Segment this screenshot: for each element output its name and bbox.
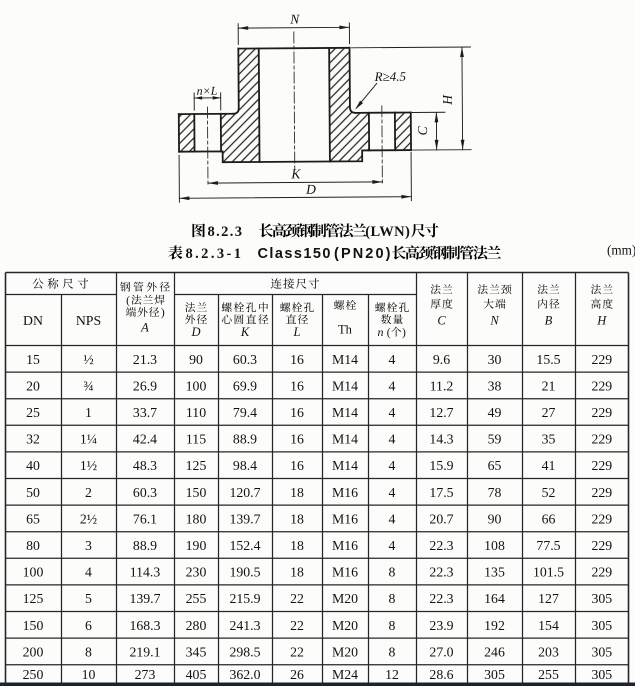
svg-text:½: ½	[83, 352, 93, 367]
svg-text:90: 90	[189, 352, 203, 367]
svg-text:154: 154	[538, 618, 559, 633]
svg-text:139.7: 139.7	[129, 591, 160, 606]
svg-text:88.9: 88.9	[133, 538, 157, 553]
svg-text:108: 108	[484, 538, 505, 553]
svg-text:78: 78	[488, 485, 502, 500]
svg-text:405: 405	[186, 667, 207, 682]
svg-text:NPS: NPS	[76, 313, 101, 328]
svg-text:4: 4	[389, 432, 396, 447]
svg-text:152.4: 152.4	[229, 538, 260, 553]
svg-text:305: 305	[591, 618, 612, 633]
svg-text:298.5: 298.5	[229, 644, 260, 659]
svg-text:4: 4	[389, 458, 396, 473]
svg-text:69.9: 69.9	[233, 378, 257, 393]
svg-text:4: 4	[389, 511, 396, 526]
svg-text:66: 66	[542, 511, 556, 526]
svg-text:¾: ¾	[83, 378, 93, 393]
svg-text:229: 229	[591, 565, 612, 580]
svg-text:38: 38	[488, 378, 502, 393]
svg-text:168.3: 168.3	[129, 618, 160, 633]
svg-text:(: (	[387, 327, 391, 339]
svg-text:33.7: 33.7	[133, 405, 157, 420]
svg-text:164: 164	[484, 591, 505, 606]
svg-text:229: 229	[591, 378, 612, 393]
svg-text:17.5: 17.5	[429, 485, 453, 500]
svg-text:305: 305	[484, 667, 505, 682]
svg-text:21.3: 21.3	[133, 352, 157, 367]
svg-text:8: 8	[389, 618, 396, 633]
svg-text:22.3: 22.3	[429, 591, 453, 606]
svg-text:16: 16	[290, 378, 304, 393]
svg-text:8.2.3: 8.2.3	[208, 224, 243, 240]
svg-text:12.7: 12.7	[429, 405, 453, 420]
svg-text:M16: M16	[332, 538, 358, 553]
svg-text:): )	[161, 307, 165, 319]
svg-text:M14: M14	[332, 458, 358, 473]
svg-text:150: 150	[186, 485, 207, 500]
svg-text:48.3: 48.3	[133, 458, 157, 473]
svg-text:M14: M14	[332, 378, 358, 393]
svg-text:190: 190	[186, 538, 207, 553]
svg-text:D: D	[190, 325, 200, 339]
svg-text:229: 229	[591, 458, 612, 473]
svg-text:28.6: 28.6	[429, 667, 453, 682]
svg-text:5: 5	[85, 591, 92, 606]
svg-text:K: K	[290, 166, 301, 181]
svg-text:16: 16	[290, 352, 304, 367]
svg-text:M14: M14	[332, 405, 358, 420]
svg-text:100: 100	[23, 565, 44, 580]
svg-text:79.4: 79.4	[233, 405, 257, 420]
svg-text:22: 22	[290, 644, 304, 659]
svg-text:345: 345	[186, 644, 207, 659]
svg-text:20: 20	[26, 378, 40, 393]
svg-text:229: 229	[591, 405, 612, 420]
svg-text:22.3: 22.3	[429, 538, 453, 553]
svg-text:139.7: 139.7	[229, 511, 260, 526]
svg-text:4: 4	[389, 405, 396, 420]
svg-text:22.3: 22.3	[429, 565, 453, 580]
svg-text:100: 100	[186, 378, 207, 393]
svg-text:(PN20): (PN20)	[334, 246, 391, 262]
svg-text:49: 49	[488, 405, 502, 420]
svg-text:273: 273	[135, 667, 156, 682]
svg-text:77.5: 77.5	[536, 538, 560, 553]
svg-text:229: 229	[591, 485, 612, 500]
svg-text:203: 203	[538, 644, 559, 659]
svg-text:135: 135	[484, 565, 505, 580]
svg-text:8.2.3-1: 8.2.3-1	[186, 246, 242, 262]
svg-text:(LWN): (LWN)	[365, 224, 410, 240]
svg-text:305: 305	[591, 667, 612, 682]
svg-text:76.1: 76.1	[133, 511, 157, 526]
svg-text:115: 115	[186, 432, 206, 447]
svg-text:9.6: 9.6	[433, 352, 450, 367]
svg-text:114.3: 114.3	[130, 565, 161, 580]
svg-text:2: 2	[85, 485, 92, 500]
svg-text:80: 80	[26, 538, 40, 553]
svg-text:15: 15	[26, 352, 40, 367]
svg-text:22: 22	[290, 591, 304, 606]
svg-text:65: 65	[488, 458, 502, 473]
svg-text:K: K	[240, 325, 250, 339]
svg-text:DN: DN	[23, 313, 43, 328]
svg-text:M14: M14	[332, 432, 358, 447]
svg-text:229: 229	[591, 511, 612, 526]
svg-text:362.0: 362.0	[229, 667, 260, 682]
svg-text:H: H	[440, 94, 455, 106]
svg-text:M24: M24	[332, 667, 358, 682]
svg-text:B: B	[545, 314, 553, 328]
svg-text:250: 250	[23, 667, 44, 682]
svg-text:230: 230	[186, 565, 207, 580]
svg-text:229: 229	[591, 432, 612, 447]
svg-text:26.9: 26.9	[133, 378, 157, 393]
svg-text:n: n	[378, 325, 384, 339]
svg-text:16: 16	[290, 432, 304, 447]
svg-text:23.9: 23.9	[429, 618, 453, 633]
svg-text:101.5: 101.5	[533, 565, 564, 580]
svg-text:M20: M20	[332, 644, 358, 659]
svg-text:98.4: 98.4	[233, 458, 257, 473]
svg-text:H: H	[596, 314, 607, 328]
svg-text:16: 16	[290, 405, 304, 420]
svg-text:6: 6	[85, 618, 92, 633]
svg-text:1¼: 1¼	[80, 432, 97, 447]
svg-text:60.3: 60.3	[133, 485, 157, 500]
svg-text:18: 18	[290, 538, 304, 553]
svg-text:52: 52	[542, 485, 556, 500]
svg-text:255: 255	[186, 591, 207, 606]
svg-text:12: 12	[385, 667, 399, 682]
svg-text:60.3: 60.3	[233, 352, 257, 367]
svg-text:3: 3	[85, 538, 92, 553]
svg-text:22: 22	[290, 618, 304, 633]
svg-text:8: 8	[85, 644, 92, 659]
svg-text:M20: M20	[332, 618, 358, 633]
svg-text:n×L: n×L	[197, 84, 218, 98]
svg-text:10: 10	[82, 667, 96, 682]
svg-text:219.1: 219.1	[129, 644, 160, 659]
svg-text:127: 127	[538, 591, 559, 606]
svg-text:4: 4	[85, 565, 92, 580]
svg-text:27.0: 27.0	[429, 644, 453, 659]
svg-text:229: 229	[591, 538, 612, 553]
svg-text:40: 40	[26, 458, 40, 473]
svg-text:): )	[402, 327, 406, 339]
svg-text:190.5: 190.5	[229, 565, 260, 580]
svg-text:M16: M16	[332, 565, 358, 580]
svg-text:8: 8	[389, 565, 396, 580]
svg-text:255: 255	[538, 667, 559, 682]
svg-text:125: 125	[186, 458, 207, 473]
svg-text:L: L	[293, 325, 301, 339]
svg-text:30: 30	[488, 352, 502, 367]
svg-text:41: 41	[542, 458, 556, 473]
svg-text:M16: M16	[332, 511, 358, 526]
svg-text:65: 65	[26, 511, 40, 526]
svg-text:50: 50	[26, 485, 40, 500]
svg-text:2½: 2½	[80, 511, 97, 526]
svg-text:14.3: 14.3	[429, 432, 453, 447]
svg-text:20.7: 20.7	[429, 511, 453, 526]
svg-text:90: 90	[488, 511, 502, 526]
svg-text:R≥4.5: R≥4.5	[374, 69, 407, 84]
svg-text:32: 32	[26, 432, 40, 447]
svg-text:200: 200	[23, 644, 44, 659]
svg-text:280: 280	[186, 618, 207, 633]
svg-text:180: 180	[186, 511, 207, 526]
svg-text:C: C	[415, 125, 430, 135]
svg-text:M20: M20	[332, 591, 358, 606]
svg-text:192: 192	[484, 618, 505, 633]
svg-text:125: 125	[23, 591, 44, 606]
svg-text:305: 305	[591, 591, 612, 606]
svg-text:4: 4	[389, 378, 396, 393]
svg-text:11.2: 11.2	[430, 378, 454, 393]
svg-text:246: 246	[484, 644, 505, 659]
svg-text:M14: M14	[332, 352, 358, 367]
svg-text:8: 8	[389, 644, 396, 659]
svg-text:1: 1	[85, 405, 92, 420]
svg-text:(mm): (mm)	[607, 243, 635, 258]
svg-text:27: 27	[542, 405, 556, 420]
svg-text:4: 4	[389, 485, 396, 500]
svg-text:C: C	[437, 314, 446, 328]
svg-text:18: 18	[290, 485, 304, 500]
svg-text:26: 26	[290, 667, 304, 682]
svg-text:N: N	[489, 314, 499, 328]
svg-text:8: 8	[389, 591, 396, 606]
svg-text:241.3: 241.3	[229, 618, 260, 633]
svg-text:Th: Th	[338, 323, 353, 337]
svg-text:215.9: 215.9	[229, 591, 260, 606]
svg-text:4: 4	[389, 352, 396, 367]
svg-text:229: 229	[591, 352, 612, 367]
svg-text:4: 4	[389, 538, 396, 553]
svg-text:42.4: 42.4	[133, 432, 157, 447]
svg-text:88.9: 88.9	[233, 432, 257, 447]
svg-text:25: 25	[26, 405, 40, 420]
svg-text:15.9: 15.9	[429, 458, 453, 473]
svg-text:305: 305	[591, 644, 612, 659]
svg-text:110: 110	[186, 405, 206, 420]
svg-text:D: D	[305, 182, 316, 197]
svg-text:15.5: 15.5	[536, 352, 560, 367]
svg-text:59: 59	[488, 432, 502, 447]
svg-text:16: 16	[290, 458, 304, 473]
svg-text:150: 150	[23, 618, 44, 633]
svg-text:21: 21	[542, 378, 556, 393]
svg-text:18: 18	[290, 565, 304, 580]
svg-text:18: 18	[290, 511, 304, 526]
svg-text:N: N	[289, 12, 300, 27]
svg-text:A: A	[140, 321, 149, 335]
svg-text:120.7: 120.7	[229, 485, 260, 500]
svg-text:1½: 1½	[80, 458, 97, 473]
svg-text:(: (	[126, 295, 130, 307]
svg-text:M16: M16	[332, 485, 358, 500]
svg-text:Class150: Class150	[258, 246, 331, 262]
svg-text:35: 35	[542, 432, 556, 447]
